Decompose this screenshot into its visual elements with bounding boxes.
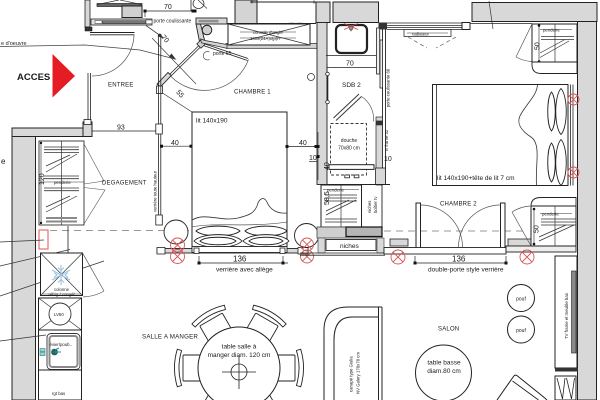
- svg-text:verrière toute hauteur: verrière toute hauteur: [153, 170, 158, 212]
- svg-text:70x80 cm: 70x80 cm: [338, 146, 360, 152]
- svg-text:penderie: penderie: [542, 212, 559, 217]
- svg-text:10: 10: [384, 156, 392, 163]
- svg-text:porte coulissante: porte coulissante: [154, 19, 192, 25]
- svg-text:40: 40: [324, 162, 331, 170]
- svg-text:TV frame et meuble bas: TV frame et meuble bas: [564, 293, 569, 339]
- svg-text:réfrig / congél: réfrig / congél: [48, 292, 74, 297]
- svg-text:niches: niches: [340, 243, 360, 250]
- svg-text:lit 140x190+tête de lit 7 cm: lit 140x190+tête de lit 7 cm: [437, 175, 515, 182]
- svg-text:120: 120: [39, 173, 46, 185]
- svg-text:e d'oeuvre: e d'oeuvre: [1, 41, 27, 47]
- svg-text:console d'angle: console d'angle: [253, 30, 283, 35]
- svg-text:ACCES: ACCES: [17, 72, 50, 83]
- svg-text:SALLE A MANGER: SALLE A MANGER: [142, 334, 198, 341]
- svg-text:double-porte style verrière: double-porte style verrière: [428, 267, 504, 274]
- svg-text:rgt bas: rgt bas: [52, 391, 65, 396]
- svg-text:CHAMBRE 1: CHAMBRE 1: [234, 90, 271, 96]
- svg-text:table salle à: table salle à: [222, 344, 257, 351]
- svg-text:e: e: [1, 157, 6, 166]
- svg-text:10: 10: [309, 155, 317, 162]
- svg-text:table basse: table basse: [427, 360, 461, 367]
- svg-text:40: 40: [171, 140, 179, 147]
- svg-text:porte coulissante 60: porte coulissante 60: [386, 68, 391, 107]
- svg-text:diam.80 cm: diam.80 cm: [427, 368, 461, 375]
- svg-text:50: 50: [534, 225, 541, 233]
- svg-text:penderie: penderie: [543, 28, 560, 33]
- svg-text:SALON: SALON: [438, 327, 459, 333]
- svg-text:ENTREE: ENTREE: [108, 83, 134, 89]
- svg-text:canapé type Giulia: canapé type Giulia: [349, 356, 354, 392]
- svg-text:évier/poub..: évier/poub..: [50, 342, 72, 347]
- svg-text:lit 140x190: lit 140x190: [196, 118, 228, 125]
- svg-text:SDB 2: SDB 2: [342, 82, 361, 89]
- svg-text:93: 93: [117, 125, 125, 132]
- svg-text:tv frame 32': tv frame 32': [384, 129, 389, 151]
- svg-text:136: 136: [233, 255, 247, 264]
- svg-text:radiateur: radiateur: [412, 32, 430, 37]
- svg-text:DEGAGEMENT: DEGAGEMENT: [102, 181, 147, 187]
- svg-text:porte 65: porte 65: [213, 51, 232, 57]
- svg-text:70: 70: [164, 4, 172, 11]
- svg-text:pouf: pouf: [516, 328, 526, 334]
- svg-text:pouf: pouf: [516, 297, 526, 303]
- svg-text:verrière avec allège: verrière avec allège: [216, 267, 273, 274]
- svg-text:douche: douche: [341, 138, 358, 144]
- svg-text:70: 70: [346, 61, 354, 68]
- svg-text:penderie: penderie: [54, 180, 71, 185]
- svg-text:niches: niches: [367, 201, 372, 213]
- svg-text:boîtier tv: boîtier tv: [373, 196, 378, 213]
- svg-text:136: 136: [452, 255, 466, 264]
- svg-text:LV60: LV60: [54, 312, 64, 317]
- svg-text:CHAMBRE 2: CHAMBRE 2: [440, 202, 477, 208]
- svg-text:40: 40: [299, 140, 307, 147]
- svg-text:NV Galery 170x70 cm: NV Galery 170x70 cm: [356, 352, 361, 394]
- svg-text:58,5: 58,5: [324, 191, 331, 205]
- svg-text:140x(24A)x(p)h: 140x(24A)x(p)h: [250, 36, 280, 41]
- svg-text:50: 50: [535, 42, 542, 50]
